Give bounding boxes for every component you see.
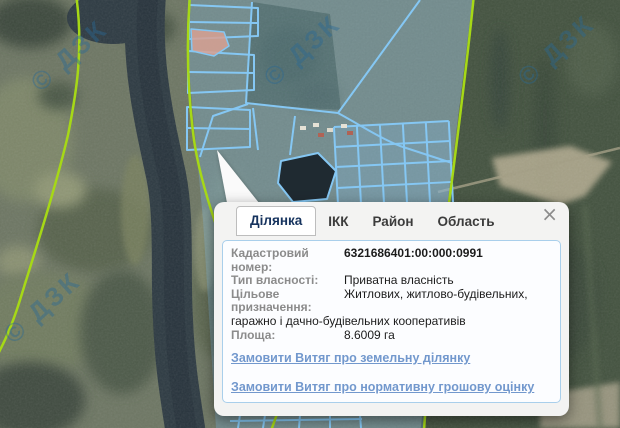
field-ownership-type: Тип власності:Приватна власність: [231, 274, 552, 288]
popup-tabs: Ділянка ІКК Район Область: [214, 202, 569, 236]
field-label: Кадастровий номер:: [231, 247, 344, 274]
field-label: Цільове призначення:: [231, 288, 344, 315]
field-value: 8.6009 га: [344, 328, 395, 342]
tab-dilyanka[interactable]: Ділянка: [236, 206, 316, 236]
field-value: Приватна власність: [344, 273, 454, 287]
field-designated-purpose: Цільове призначення:Житлових, житлово-бу…: [231, 288, 552, 329]
field-area: Площа:8.6009 га: [231, 329, 552, 343]
link-row: Замовити Витяг про земельну ділянку: [231, 350, 552, 366]
field-cadastral-number: Кадастровий номер:6321686401:00:000:0991: [231, 247, 552, 274]
field-value: 6321686401:00:000:0991: [344, 246, 483, 260]
popup-links: Замовити Витяг про земельну ділянку Замо…: [231, 350, 552, 403]
parcel-info-popup: × Ділянка ІКК Район Область Кадастровий …: [214, 202, 569, 416]
tab-rayon[interactable]: Район: [360, 208, 425, 236]
close-icon[interactable]: ×: [541, 204, 558, 224]
link-row: Замовити Витяг про нормативну грошову оц…: [231, 379, 552, 395]
field-label: Тип власності:: [231, 274, 344, 288]
link-order-extract-parcel[interactable]: Замовити Витяг про земельну ділянку: [231, 351, 470, 365]
link-order-extract-valuation[interactable]: Замовити Витяг про нормативну грошову оц…: [231, 380, 534, 394]
field-label: Площа:: [231, 329, 344, 343]
tab-oblast[interactable]: Область: [426, 208, 507, 236]
tab-ikk[interactable]: ІКК: [316, 208, 360, 236]
parcel-info-box: Кадастровий номер:6321686401:00:000:0991…: [222, 240, 561, 403]
